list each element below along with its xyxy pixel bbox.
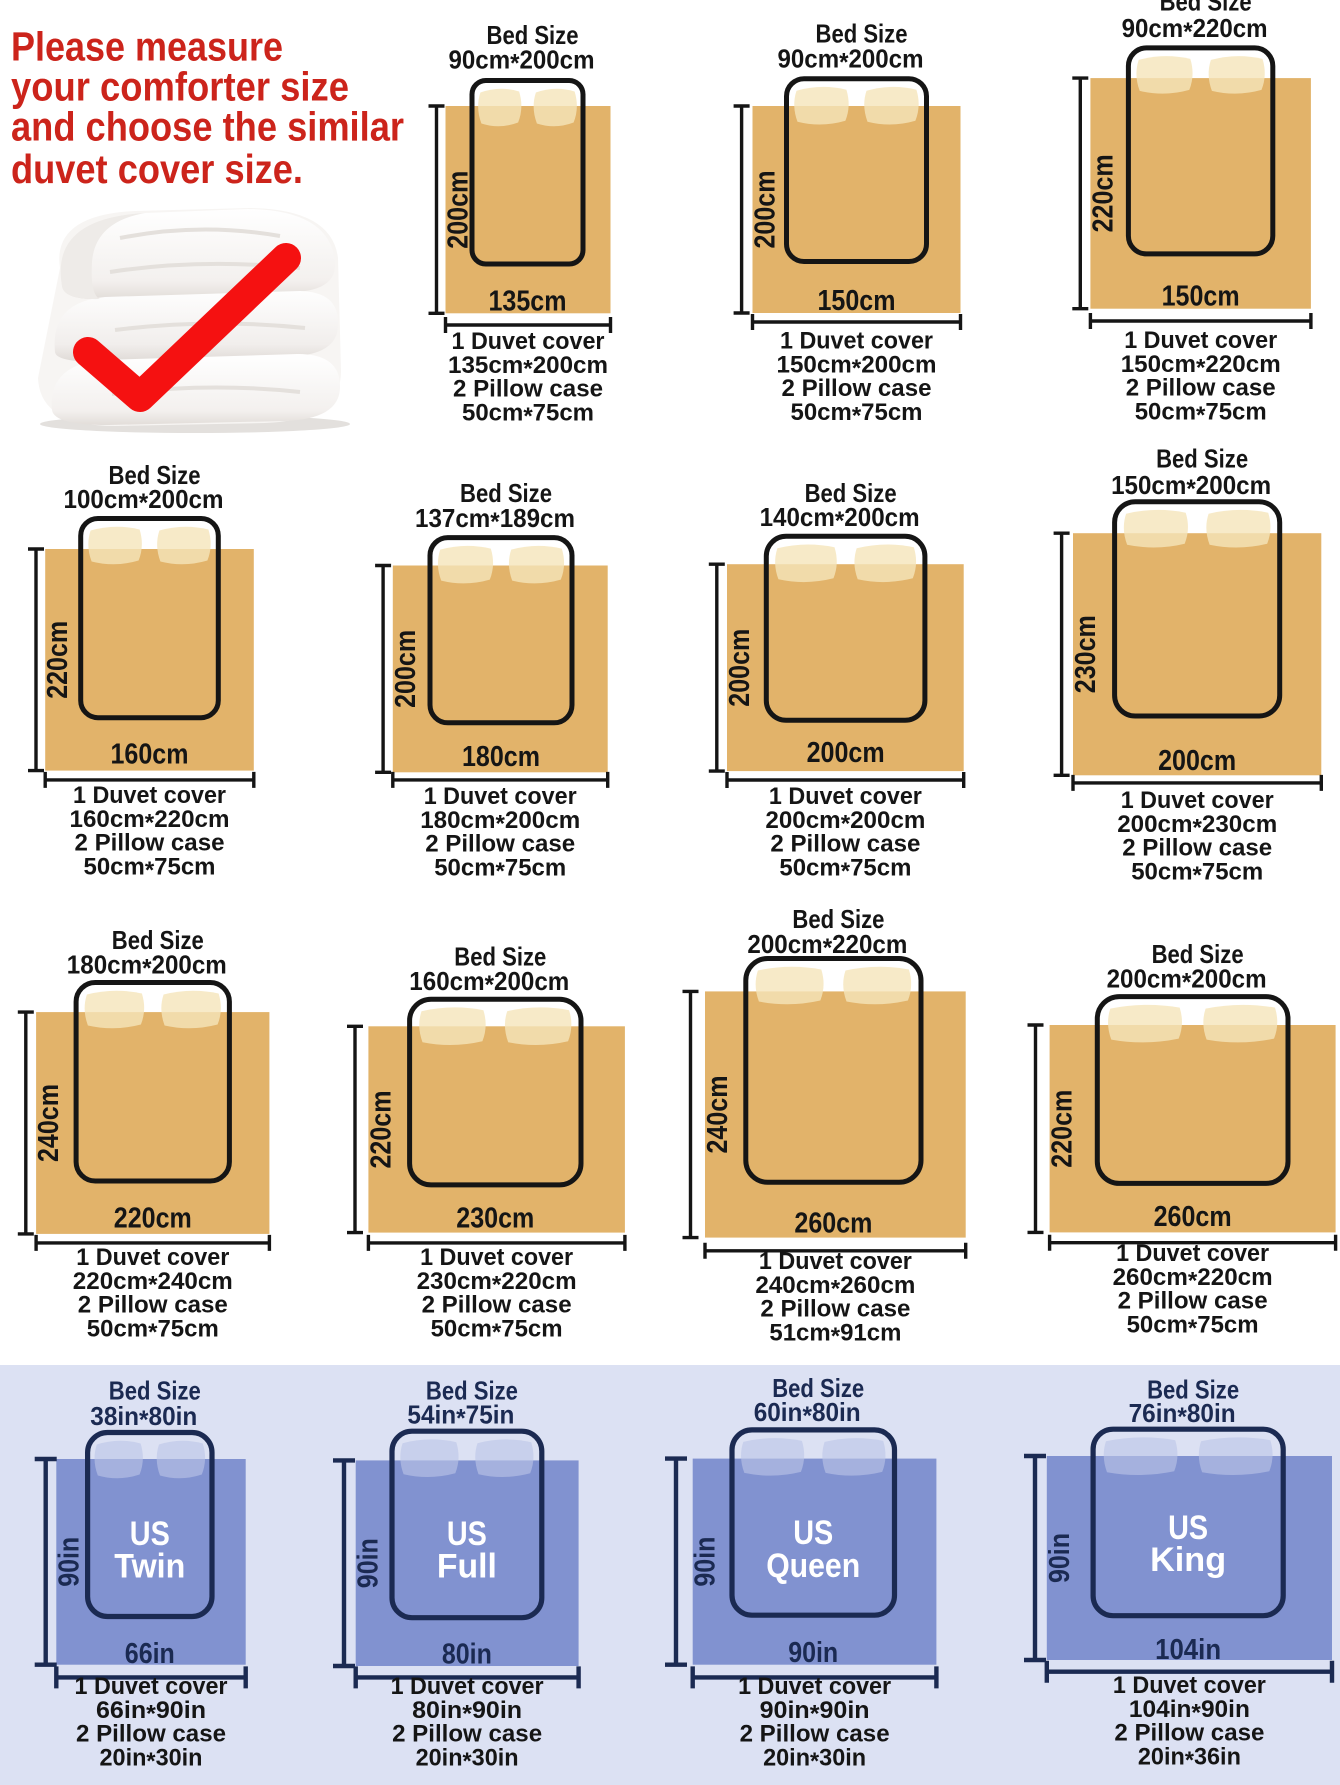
svg-text:200cm: 200cm [750, 171, 782, 249]
svg-text:230cm: 230cm [1070, 615, 1102, 693]
svg-text:104in: 104in [1155, 1634, 1221, 1666]
svg-text:150cm: 150cm [1162, 281, 1240, 313]
svg-text:Twin: Twin [114, 1548, 185, 1586]
svg-text:50cm*75cm: 50cm*75cm [791, 399, 923, 430]
svg-text:20in*36in: 20in*36in [1138, 1743, 1241, 1774]
svg-text:50cm*75cm: 50cm*75cm [431, 1315, 563, 1346]
svg-text:220cm: 220cm [1047, 1090, 1079, 1168]
svg-text:51cm*91cm: 51cm*91cm [769, 1319, 901, 1350]
svg-text:220cm: 220cm [42, 621, 74, 699]
svg-text:66in: 66in [125, 1638, 175, 1670]
svg-text:180cm: 180cm [462, 741, 540, 773]
svg-text:38in*80in: 38in*80in [90, 1401, 197, 1435]
svg-text:Queen: Queen [766, 1547, 860, 1585]
svg-text:200cm: 200cm [443, 171, 475, 249]
svg-text:260cm: 260cm [1154, 1201, 1232, 1233]
svg-text:150cm*200cm: 150cm*200cm [1111, 470, 1271, 504]
svg-text:100cm*200cm: 100cm*200cm [64, 484, 224, 518]
svg-text:50cm*75cm: 50cm*75cm [462, 399, 594, 430]
svg-text:50cm*75cm: 50cm*75cm [434, 854, 566, 885]
svg-text:20in*30in: 20in*30in [100, 1744, 203, 1775]
svg-text:duvet cover size.: duvet cover size. [11, 146, 303, 192]
svg-text:260cm: 260cm [794, 1207, 872, 1239]
svg-text:160cm: 160cm [111, 739, 189, 771]
svg-text:King: King [1150, 1541, 1226, 1579]
svg-text:220cm: 220cm [1087, 154, 1119, 232]
svg-text:20in*30in: 20in*30in [763, 1744, 866, 1775]
svg-text:180cm*200cm: 180cm*200cm [67, 950, 227, 984]
svg-text:240cm: 240cm [33, 1084, 65, 1162]
svg-text:20in*30in: 20in*30in [416, 1744, 519, 1775]
svg-text:137cm*189cm: 137cm*189cm [415, 503, 575, 537]
svg-text:160cm*200cm: 160cm*200cm [409, 966, 569, 1000]
svg-text:2 Pillow case: 2 Pillow case [740, 1721, 890, 1748]
svg-text:54in*75in: 54in*75in [407, 1400, 514, 1434]
svg-text:80in: 80in [442, 1639, 492, 1671]
svg-text:220cm: 220cm [114, 1202, 192, 1234]
svg-text:76in*80in: 76in*80in [1129, 1398, 1236, 1432]
svg-text:50cm*75cm: 50cm*75cm [87, 1315, 219, 1346]
svg-text:150cm: 150cm [818, 285, 896, 317]
svg-text:60in*80in: 60in*80in [754, 1397, 861, 1431]
svg-text:135cm: 135cm [489, 285, 567, 317]
svg-text:2 Pillow case: 2 Pillow case [76, 1721, 226, 1748]
svg-text:200cm*200cm: 200cm*200cm [1107, 964, 1267, 998]
svg-text:90in: 90in [53, 1537, 85, 1587]
svg-text:230cm: 230cm [456, 1202, 534, 1234]
svg-text:140cm*200cm: 140cm*200cm [760, 502, 920, 536]
svg-text:200cm: 200cm [807, 737, 885, 769]
svg-text:240cm: 240cm [702, 1076, 734, 1154]
svg-text:Full: Full [437, 1548, 497, 1586]
svg-text:90in: 90in [1044, 1533, 1076, 1583]
svg-text:and choose the similar: and choose the similar [11, 104, 404, 150]
svg-text:2 Pillow case: 2 Pillow case [1114, 1720, 1264, 1747]
svg-text:90cm*220cm: 90cm*220cm [1122, 13, 1268, 47]
svg-text:200cm: 200cm [390, 630, 422, 708]
svg-text:90cm*200cm: 90cm*200cm [778, 44, 924, 78]
svg-text:90in: 90in [788, 1637, 838, 1669]
svg-text:50cm*75cm: 50cm*75cm [84, 853, 216, 884]
svg-text:90in: 90in [353, 1538, 385, 1588]
svg-text:200cm: 200cm [1158, 745, 1236, 777]
svg-text:50cm*75cm: 50cm*75cm [1131, 858, 1263, 889]
svg-text:200cm: 200cm [724, 629, 756, 707]
svg-text:50cm*75cm: 50cm*75cm [779, 854, 911, 885]
svg-text:50cm*75cm: 50cm*75cm [1127, 1311, 1259, 1342]
svg-text:your comforter size: your comforter size [11, 63, 349, 109]
svg-text:220cm: 220cm [365, 1091, 397, 1169]
svg-text:90cm*200cm: 90cm*200cm [449, 45, 595, 79]
svg-text:90in: 90in [690, 1537, 722, 1587]
svg-text:2 Pillow case: 2 Pillow case [392, 1721, 542, 1748]
svg-text:50cm*75cm: 50cm*75cm [1135, 398, 1267, 429]
